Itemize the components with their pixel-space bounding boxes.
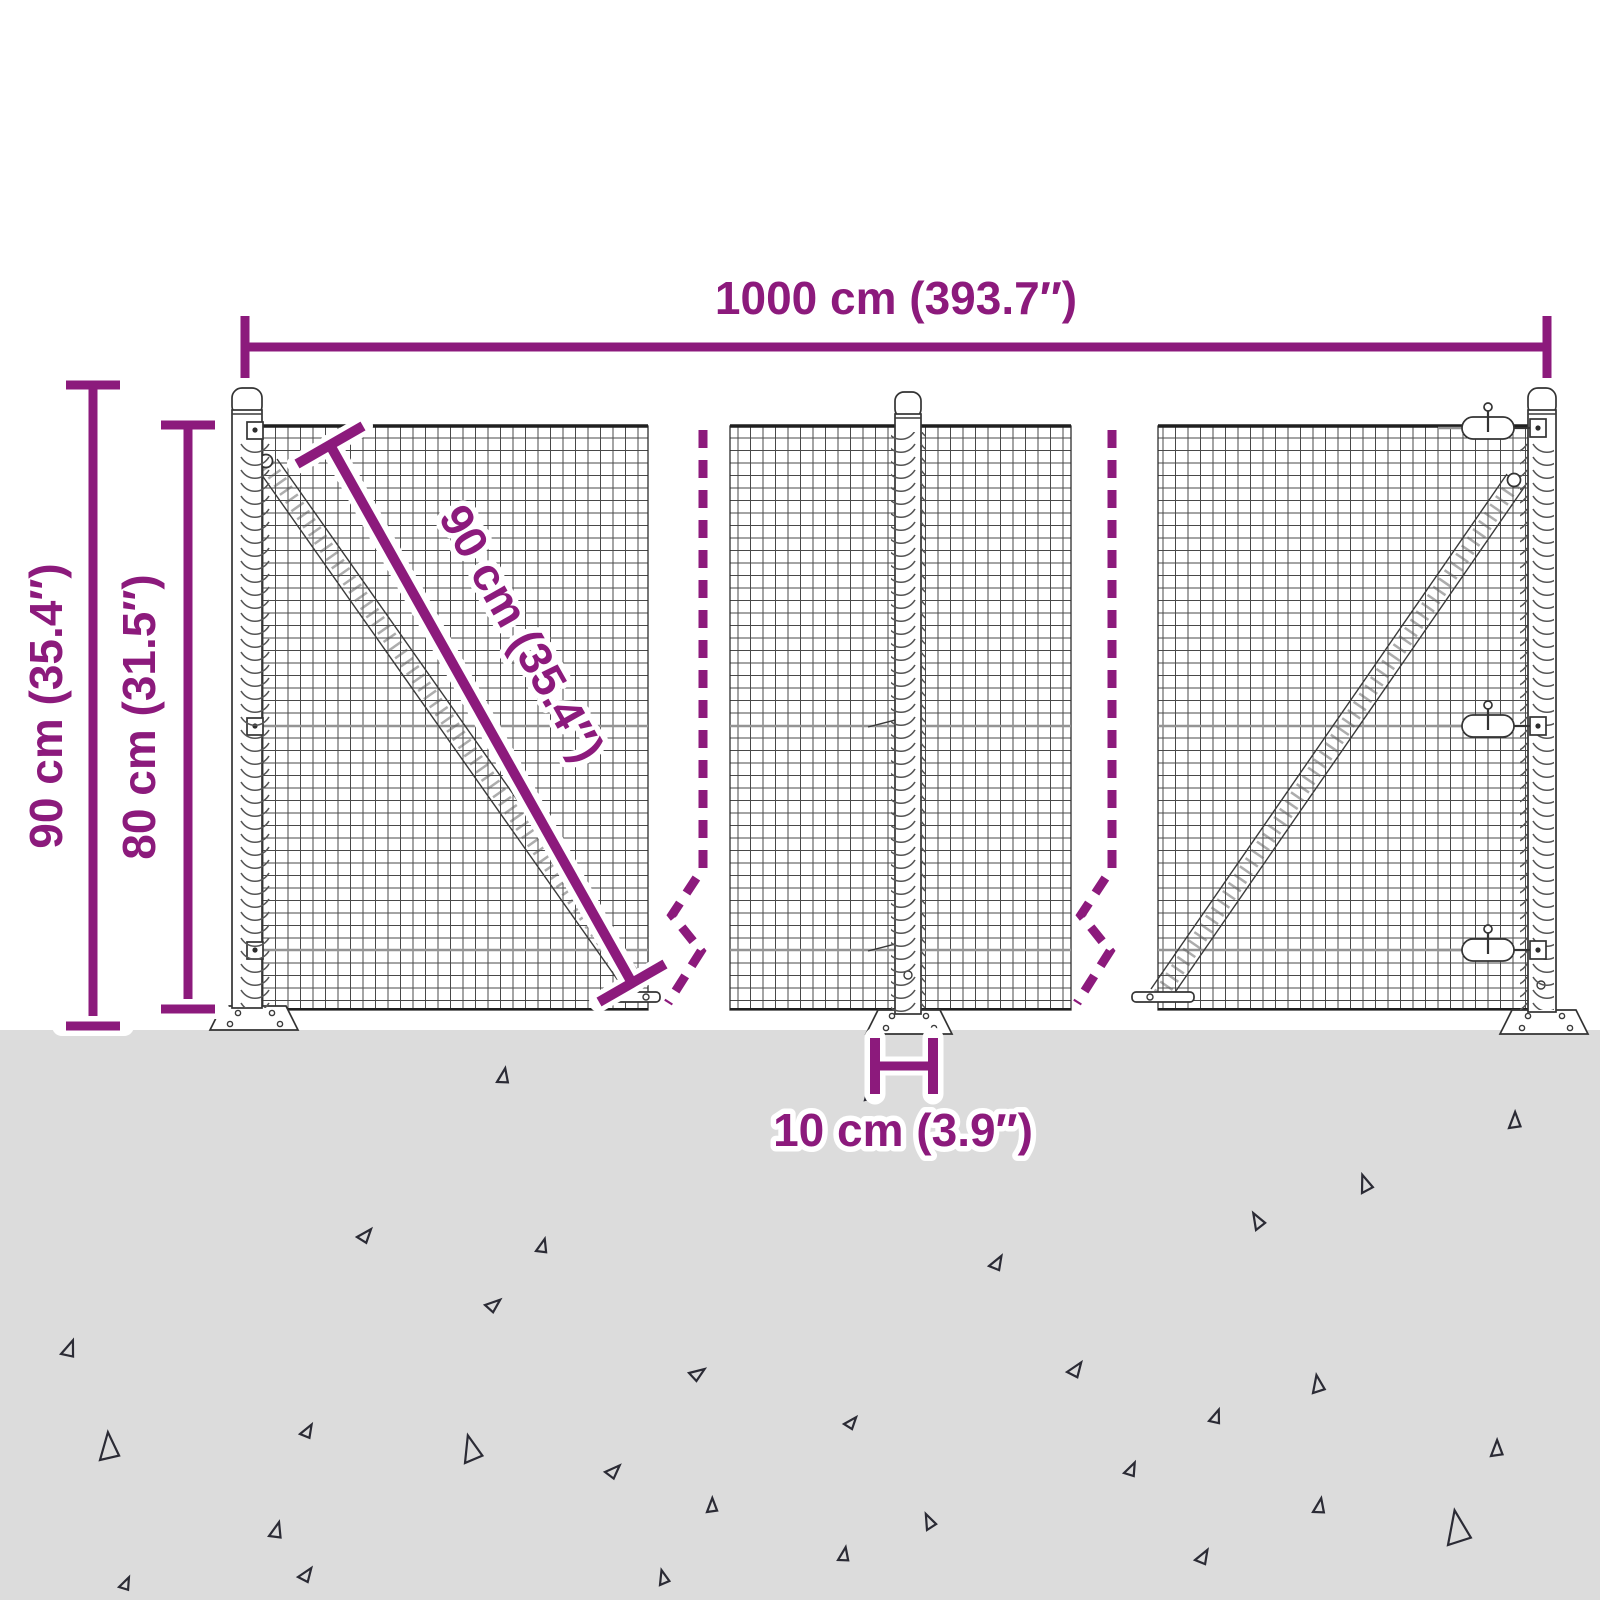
dim-height-total: 90 cm (35.4″) [20,385,124,1026]
dim-height-mesh-label: 80 cm (31.5″) [113,574,165,859]
dim-width: 1000 cm (393.7″) [245,272,1547,378]
turnbuckle-bolt-head [1484,701,1492,709]
dim-post-offset-label: 10 cm (3.9″) [773,1104,1033,1156]
brace-foot [1132,992,1194,1002]
panel-break-line [668,430,703,1003]
spiral-binding-wire [236,442,270,1008]
clamp-bolt [1535,425,1540,430]
spiral-binding-wire [891,432,925,1012]
dim-height-mesh: 80 cm (31.5″) [113,425,219,1009]
turnbuckle-bolt-head [1484,925,1492,933]
panel-break-line [1077,430,1112,1003]
clamp-bolt [252,427,257,432]
clamp-bolt [1535,723,1540,728]
clamp-bolt [1535,947,1540,952]
brace-hinge [1508,474,1521,487]
diagram-canvas: 1000 cm (393.7″) 90 cm (35.4″) 80 cm (31… [0,0,1600,1600]
turnbuckle-bolt-head [1484,403,1492,411]
dim-height-total-label: 90 cm (35.4″) [20,563,72,848]
wire-mesh-fence [210,388,1588,1034]
dim-width-label: 1000 cm (393.7″) [715,272,1077,324]
fence-dimension-diagram: 1000 cm (393.7″) 90 cm (35.4″) 80 cm (31… [0,0,1600,1600]
post-base-plate [1500,1010,1588,1034]
